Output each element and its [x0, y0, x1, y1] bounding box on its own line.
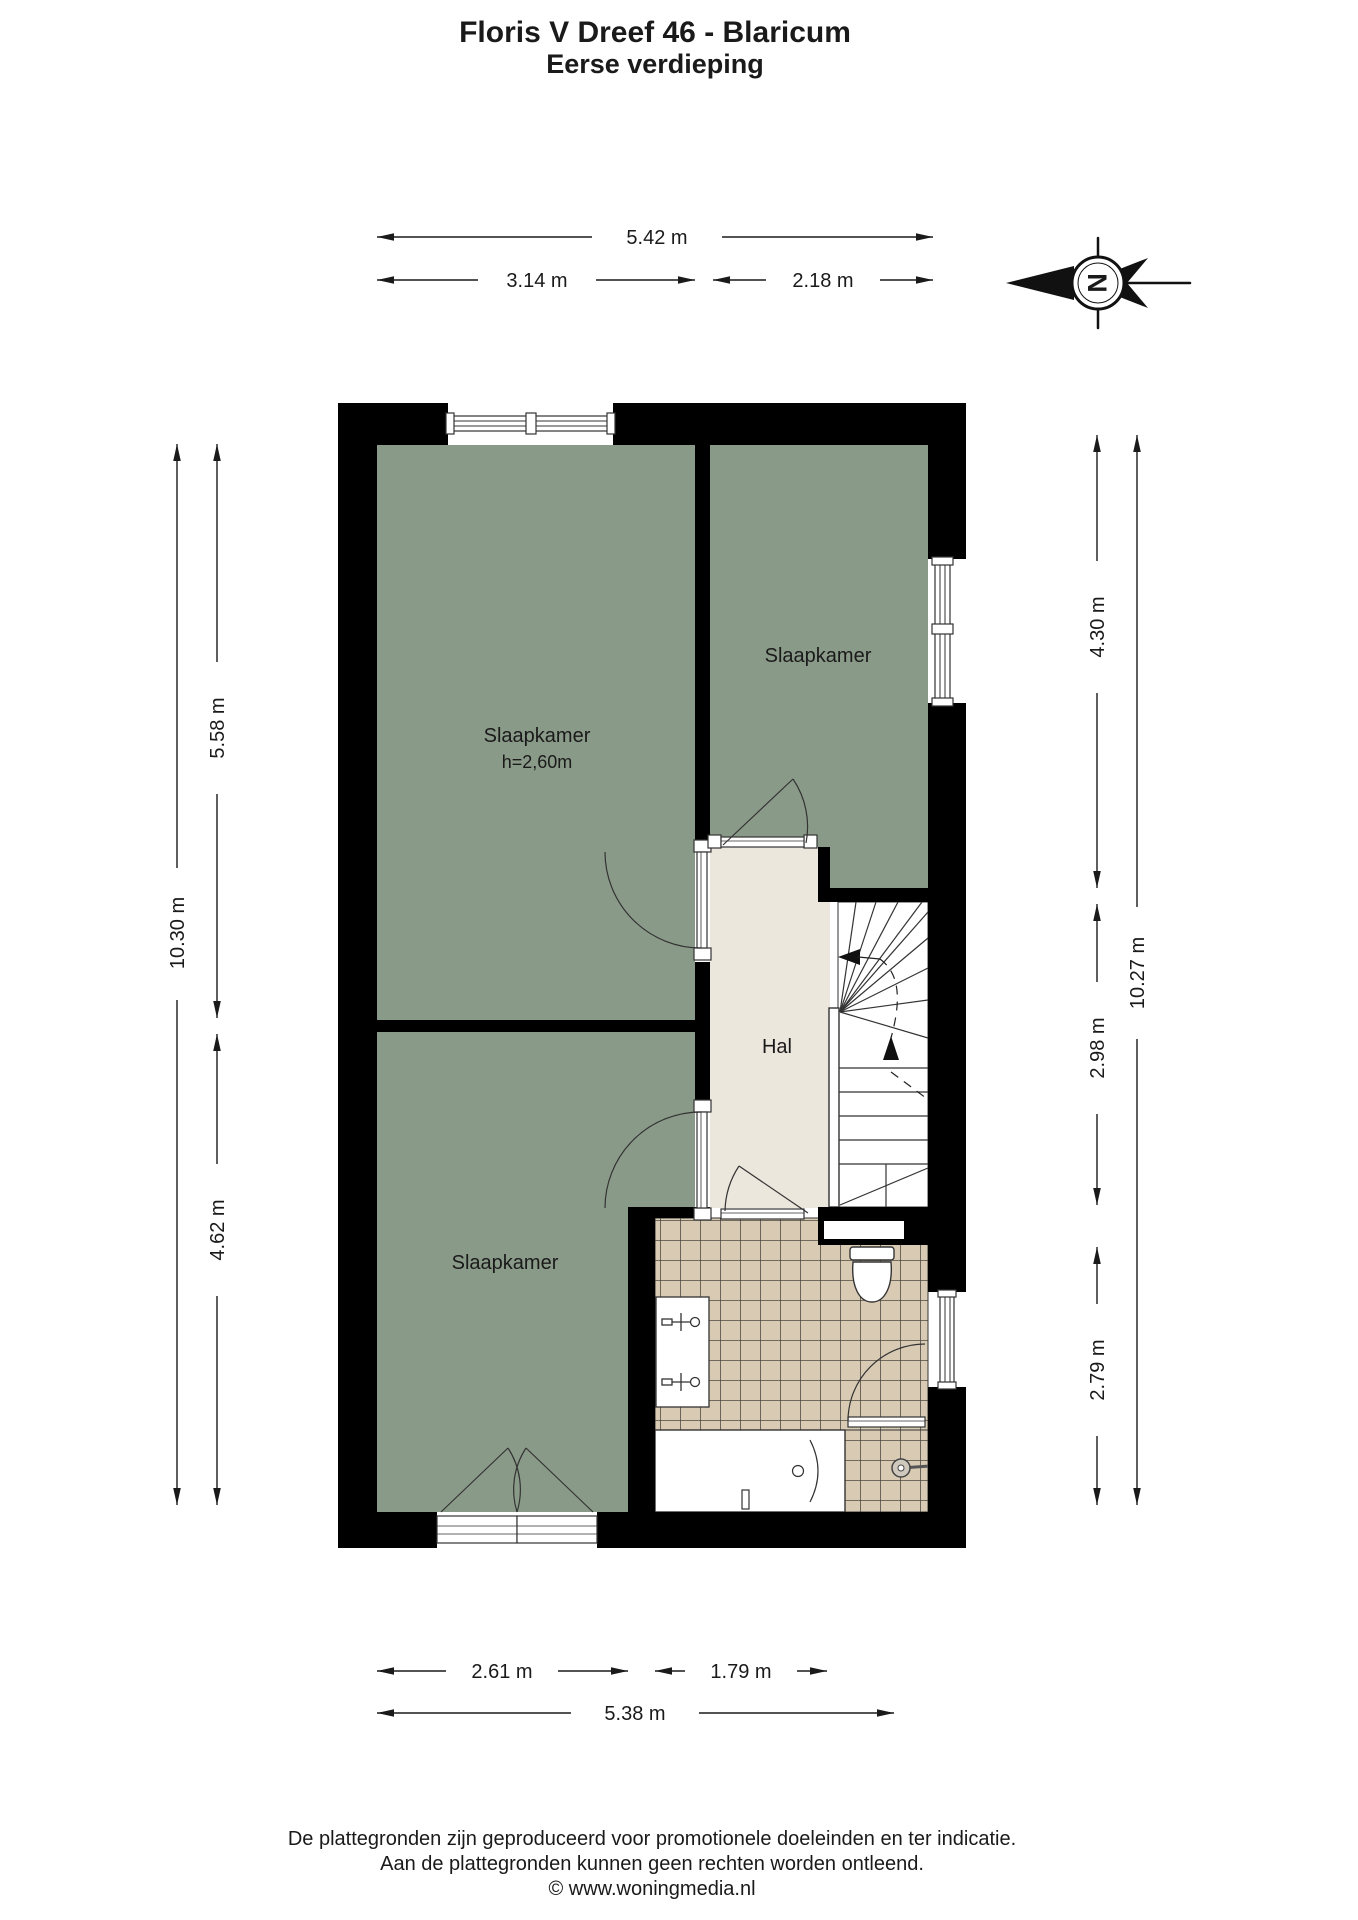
bathtub: [655, 1430, 845, 1512]
window-top: [446, 413, 615, 434]
bedroom-top-right-label: Slaapkamer: [765, 645, 872, 667]
shower-tiled-floor: [845, 1430, 928, 1512]
dim-top-total: 5.42 m: [626, 227, 687, 249]
hall-floor-strip: [818, 902, 830, 1208]
footer-line1: De plattegronden zijn geproduceerd voor …: [288, 1828, 1016, 1850]
dim-right-middle: 2.98 m: [1087, 1017, 1109, 1078]
dim-right-lower: 2.79 m: [1087, 1339, 1109, 1400]
stair-banister: [829, 1008, 839, 1207]
dim-left-total: 10.30 m: [167, 897, 189, 969]
hall-floor: [710, 847, 818, 1208]
bedroom-top-left-height: h=2,60m: [502, 752, 573, 772]
floorplan-canvas: Floris V Dreef 46 - Blaricum Eerse verdi…: [0, 0, 1358, 1920]
window-right-lower: [938, 1290, 956, 1389]
footer-copyright: © www.woningmedia.nl: [548, 1878, 755, 1900]
dim-top-left: 3.14 m: [506, 270, 567, 292]
compass-north-letter: N: [1082, 273, 1112, 293]
exterior-wall-top-left: [338, 403, 448, 445]
dim-bottom-left: 2.61 m: [471, 1661, 532, 1683]
wall-niche: [824, 1221, 904, 1239]
title-block: Floris V Dreef 46 - Blaricum Eerse verdi…: [459, 16, 851, 79]
exterior-wall-bottom-right: [597, 1512, 966, 1548]
page-title: Floris V Dreef 46 - Blaricum: [459, 16, 851, 49]
stairwell-floor: [838, 902, 928, 1207]
exterior-wall-left: [338, 403, 377, 1548]
sink-counter: [656, 1297, 709, 1407]
dim-left-upper: 5.58 m: [207, 697, 229, 758]
compass: N: [1006, 238, 1190, 328]
bedroom-bottom-left-label: Slaapkamer: [452, 1252, 559, 1274]
interior-wall-bedrooms: [695, 445, 710, 840]
dim-left-lower: 4.62 m: [207, 1199, 229, 1260]
window-right-upper: [932, 557, 953, 706]
dim-bottom-right: 1.79 m: [710, 1661, 771, 1683]
dim-bottom-total: 5.38 m: [604, 1703, 665, 1725]
bedroom-top-right-floor: [710, 445, 928, 890]
footer: De plattegronden zijn geproduceerd voor …: [288, 1828, 1016, 1900]
dim-top-right: 2.18 m: [792, 270, 853, 292]
tub-drain: [793, 1466, 804, 1477]
bedroom-top-left-label: Slaapkamer: [484, 725, 591, 747]
exterior-wall-right-middle: [928, 703, 966, 1292]
tub-handle: [742, 1490, 749, 1509]
dim-right-total: 10.27 m: [1127, 937, 1149, 1009]
interior-wall-bath-left: [628, 1218, 655, 1512]
exterior-wall-top-right: [613, 403, 966, 445]
exterior-wall-bottom-left: [338, 1512, 437, 1548]
compass-west-arrow: [1006, 266, 1074, 300]
interior-wall-bedroom2-bottom: [818, 888, 928, 902]
footer-line2: Aan de plattegronden kunnen geen rechten…: [380, 1853, 924, 1875]
interior-wall-bedrooms-left: [377, 1020, 710, 1032]
hall-label: Hal: [762, 1036, 792, 1058]
exterior-wall-right-upper: [928, 403, 966, 559]
dim-right-upper: 4.30 m: [1087, 596, 1109, 657]
floorplan-page: Floris V Dreef 46 - Blaricum Eerse verdi…: [0, 0, 1358, 1920]
page-subtitle: Eerse verdieping: [546, 49, 764, 79]
